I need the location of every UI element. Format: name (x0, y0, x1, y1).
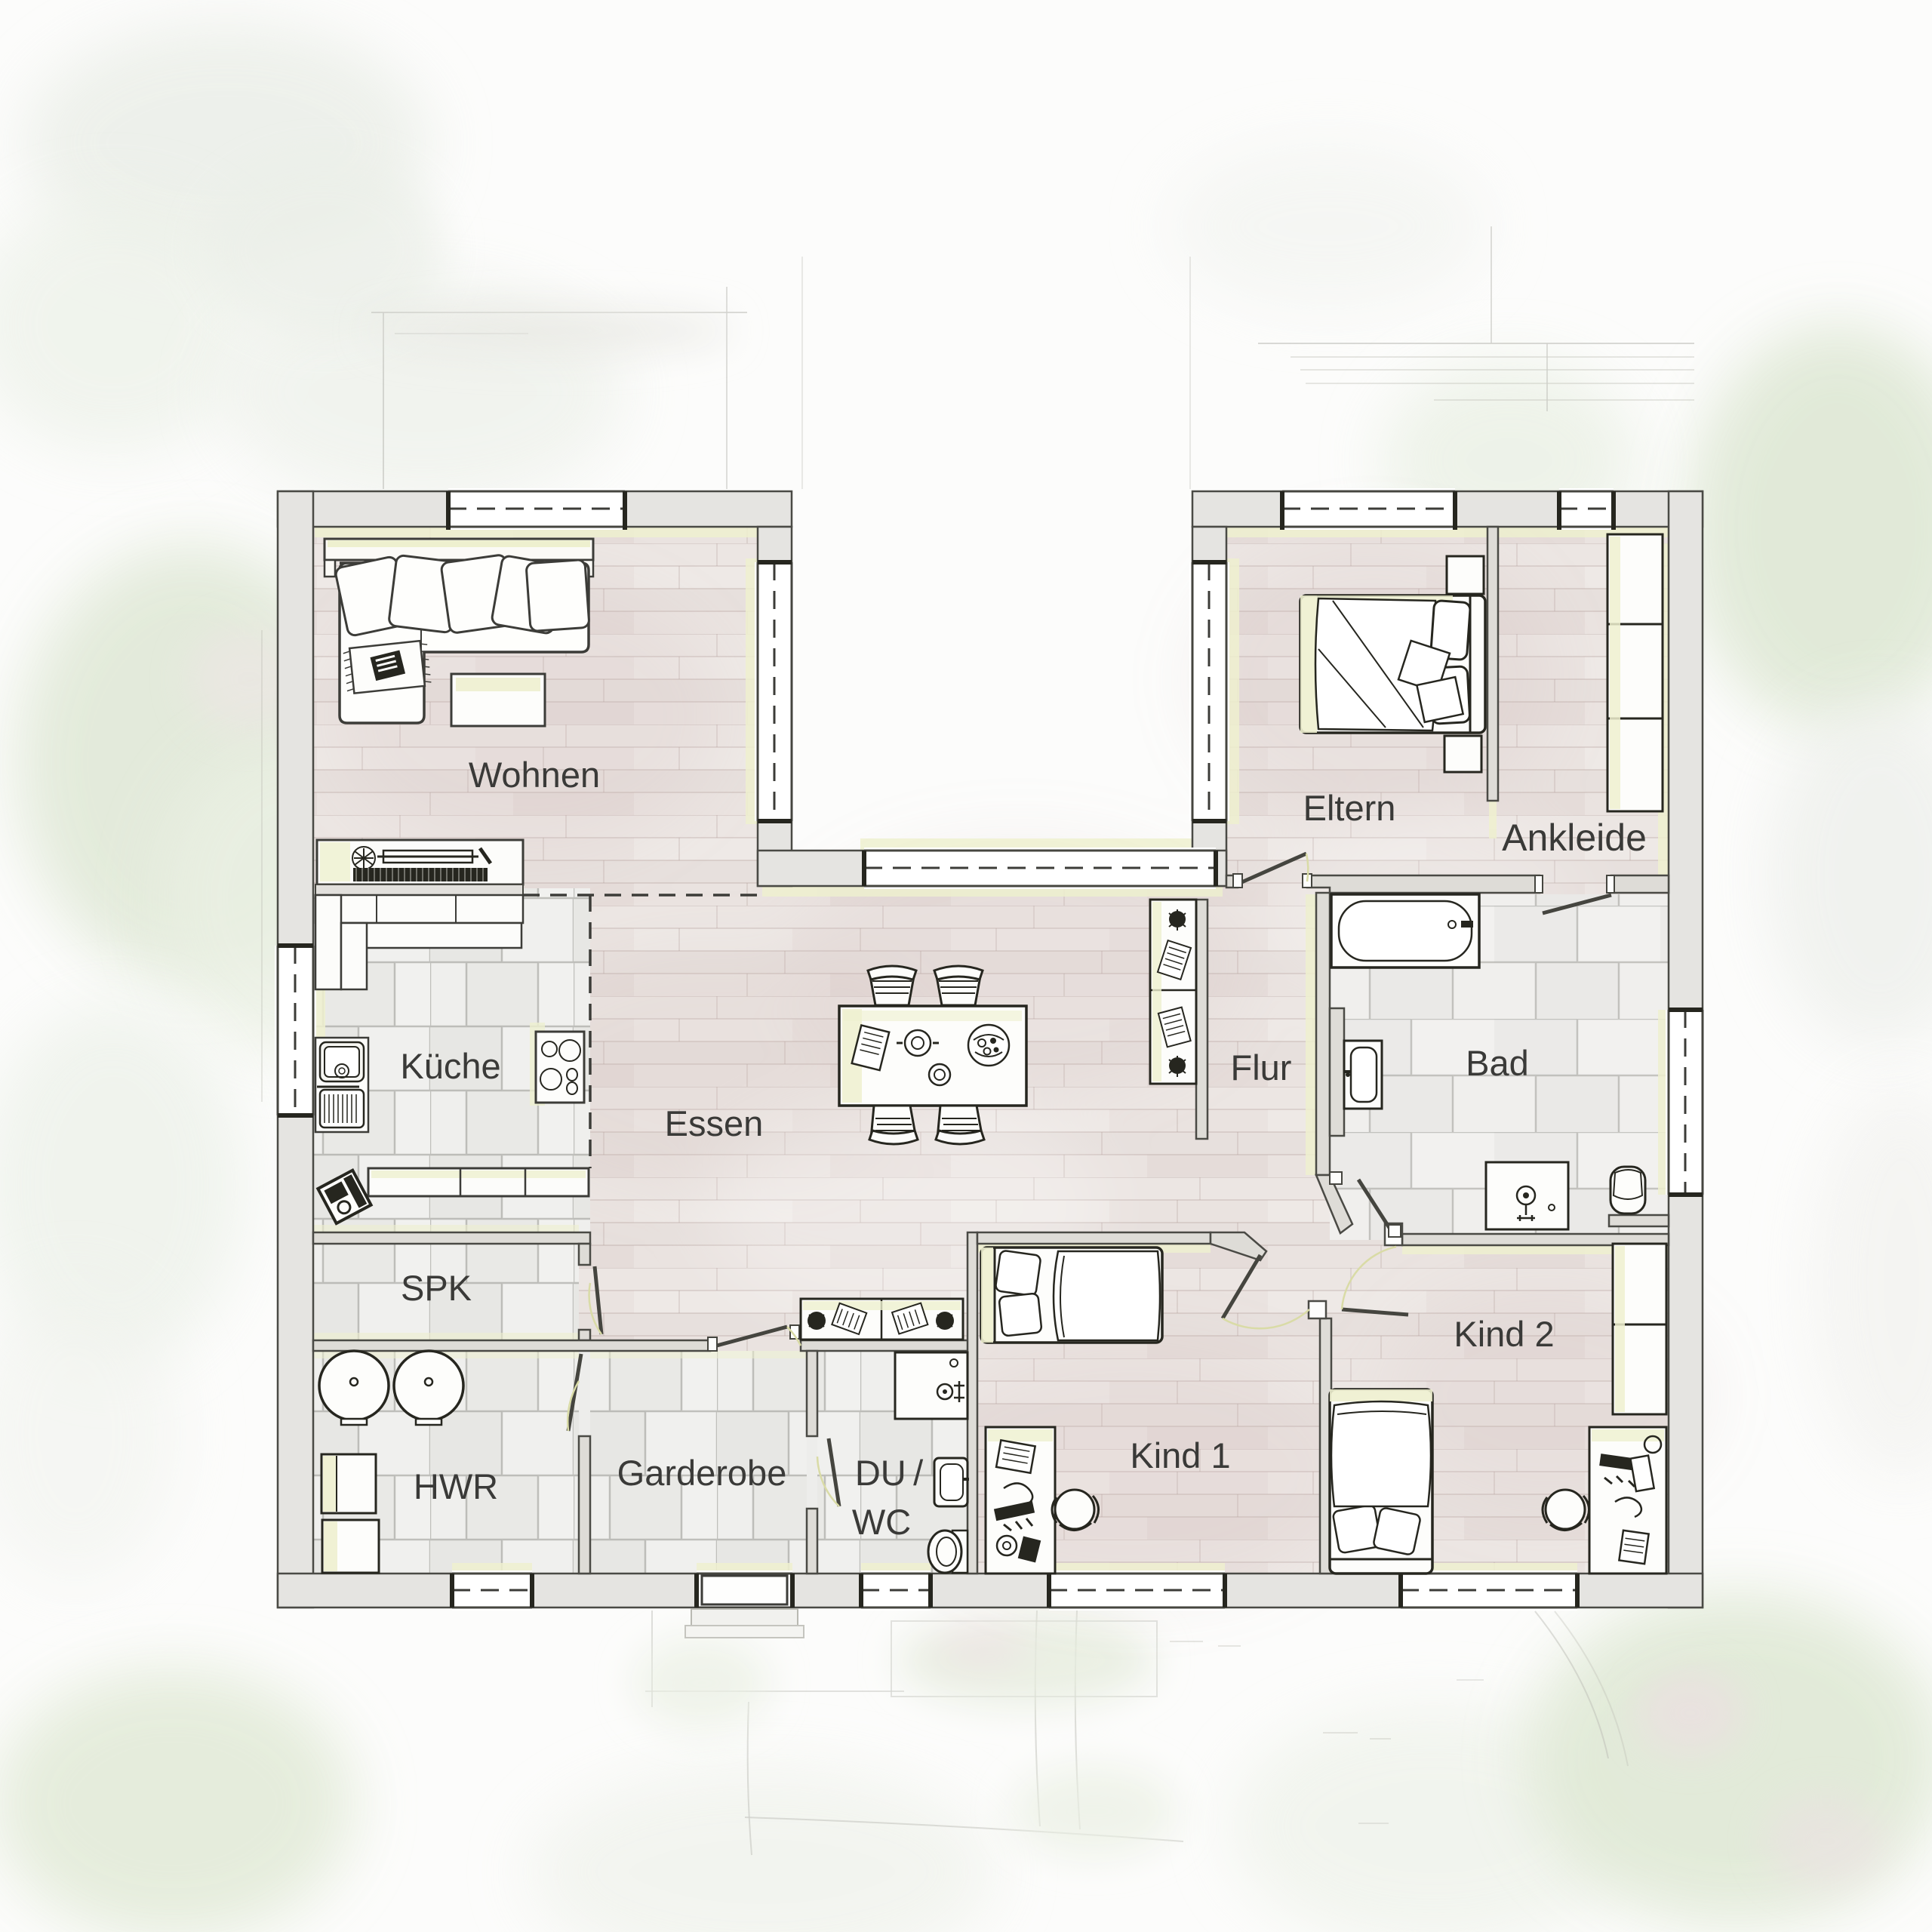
svg-text:Küche: Küche (400, 1046, 500, 1086)
svg-text:DU /: DU / (855, 1453, 924, 1493)
svg-text:WC: WC (852, 1502, 911, 1542)
svg-text:Wohnen: Wohnen (469, 755, 600, 795)
svg-text:HWR: HWR (414, 1466, 498, 1506)
svg-text:Kind 1: Kind 1 (1130, 1435, 1230, 1475)
svg-text:Bad: Bad (1466, 1043, 1529, 1083)
svg-text:Garderobe: Garderobe (617, 1453, 787, 1493)
svg-text:Essen: Essen (665, 1103, 764, 1143)
svg-text:SPK: SPK (401, 1268, 472, 1308)
svg-text:Ankleide: Ankleide (1502, 817, 1647, 859)
svg-text:Kind 2: Kind 2 (1454, 1314, 1554, 1354)
svg-text:Eltern: Eltern (1303, 788, 1396, 828)
svg-text:Flur: Flur (1231, 1048, 1292, 1088)
